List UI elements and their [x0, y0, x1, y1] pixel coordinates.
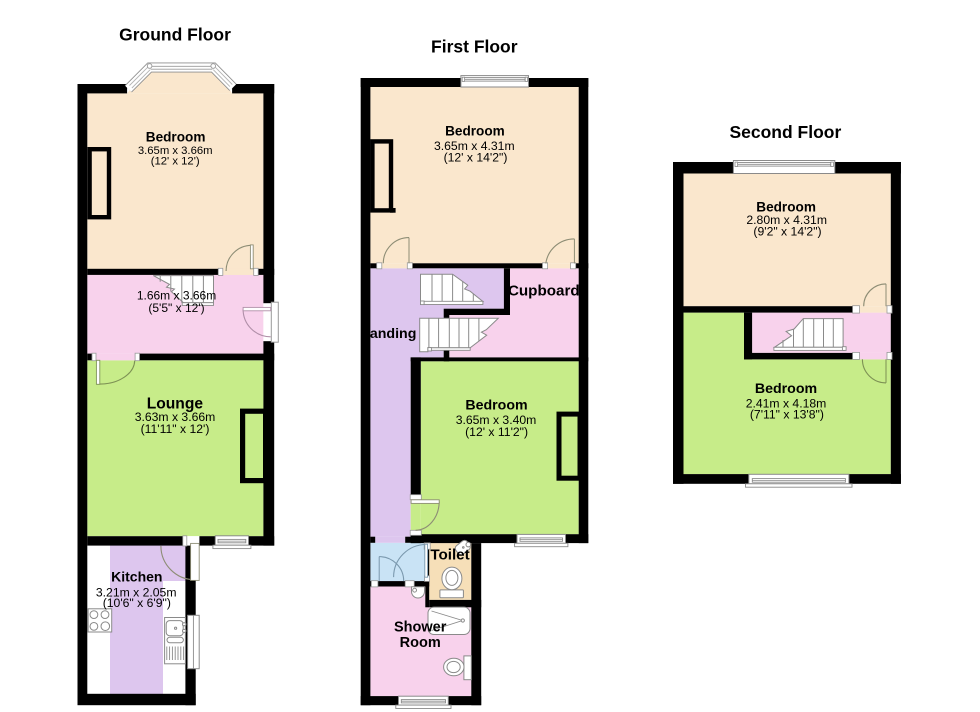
svg-text:(10'6" x 6'9"): (10'6" x 6'9"): [103, 596, 171, 610]
svg-text:(12' x 14'2"): (12' x 14'2"): [444, 151, 508, 165]
svg-text:First Floor: First Floor: [431, 36, 518, 56]
svg-text:(12' x 11'2"): (12' x 11'2"): [465, 425, 528, 439]
svg-text:Room: Room: [400, 635, 441, 651]
svg-text:Ground Floor: Ground Floor: [119, 25, 231, 45]
svg-text:Second Floor: Second Floor: [729, 122, 841, 142]
svg-text:(12' x 12'): (12' x 12'): [151, 155, 200, 167]
svg-text:Toilet: Toilet: [430, 547, 469, 564]
svg-text:Shower: Shower: [394, 619, 447, 635]
svg-text:(11'11" x 12'): (11'11" x 12'): [141, 422, 210, 436]
svg-text:Bedroom: Bedroom: [465, 397, 527, 413]
svg-text:Bedroom: Bedroom: [755, 381, 817, 397]
svg-text:Bedroom: Bedroom: [146, 130, 206, 145]
svg-text:Kitchen: Kitchen: [111, 569, 162, 585]
svg-text:(7'11" x 13'8"): (7'11" x 13'8"): [750, 407, 824, 421]
svg-text:(9'2" x 14'2"): (9'2" x 14'2"): [753, 224, 821, 238]
svg-text:(5'5" x 12'): (5'5" x 12'): [148, 301, 204, 315]
svg-text:Cupboard: Cupboard: [508, 283, 580, 300]
svg-text:Bedroom: Bedroom: [445, 124, 505, 139]
svg-text:Landing: Landing: [361, 326, 416, 342]
